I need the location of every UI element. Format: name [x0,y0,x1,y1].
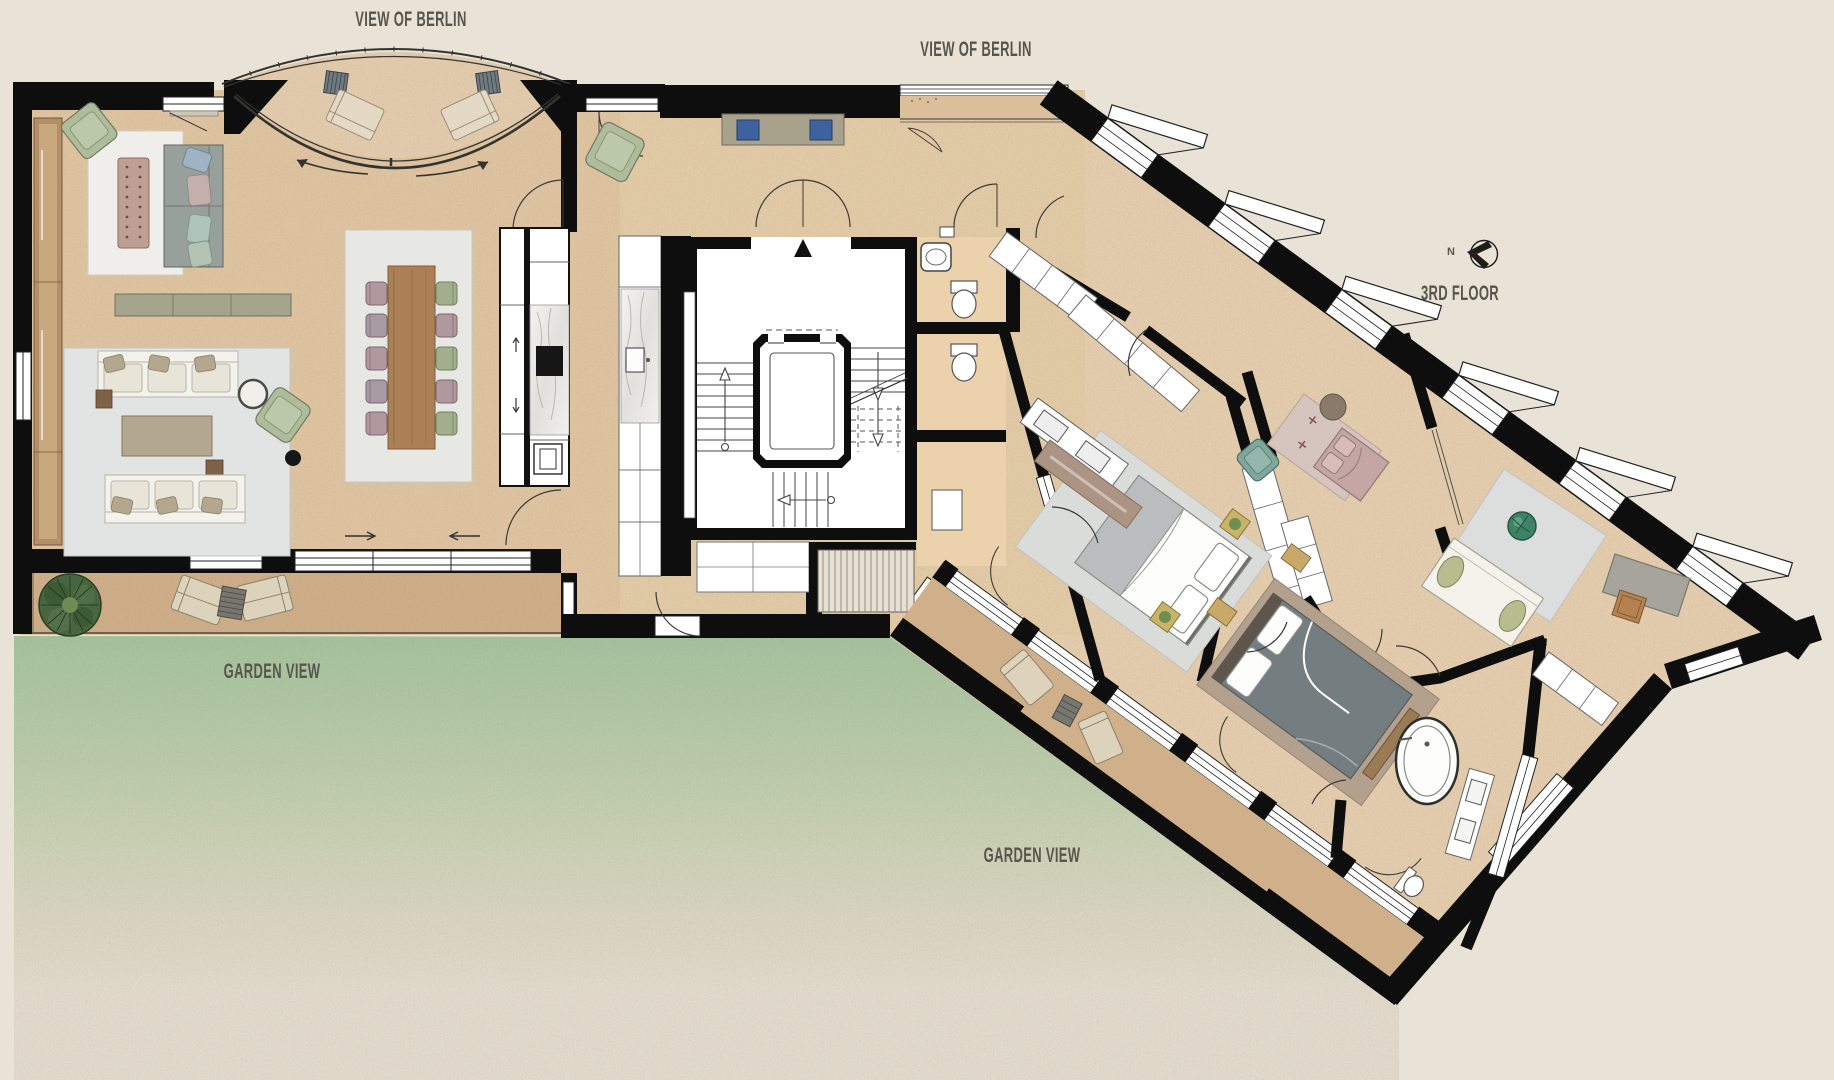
svg-text:GARDEN VIEW: GARDEN VIEW [984,843,1081,867]
svg-text:3RD FLOOR: 3RD FLOOR [1421,281,1499,305]
svg-text:N: N [1447,246,1455,258]
svg-text:VIEW OF BERLIN: VIEW OF BERLIN [920,37,1031,61]
svg-text:GARDEN VIEW: GARDEN VIEW [224,659,321,683]
svg-text:VIEW OF BERLIN: VIEW OF BERLIN [355,7,466,31]
